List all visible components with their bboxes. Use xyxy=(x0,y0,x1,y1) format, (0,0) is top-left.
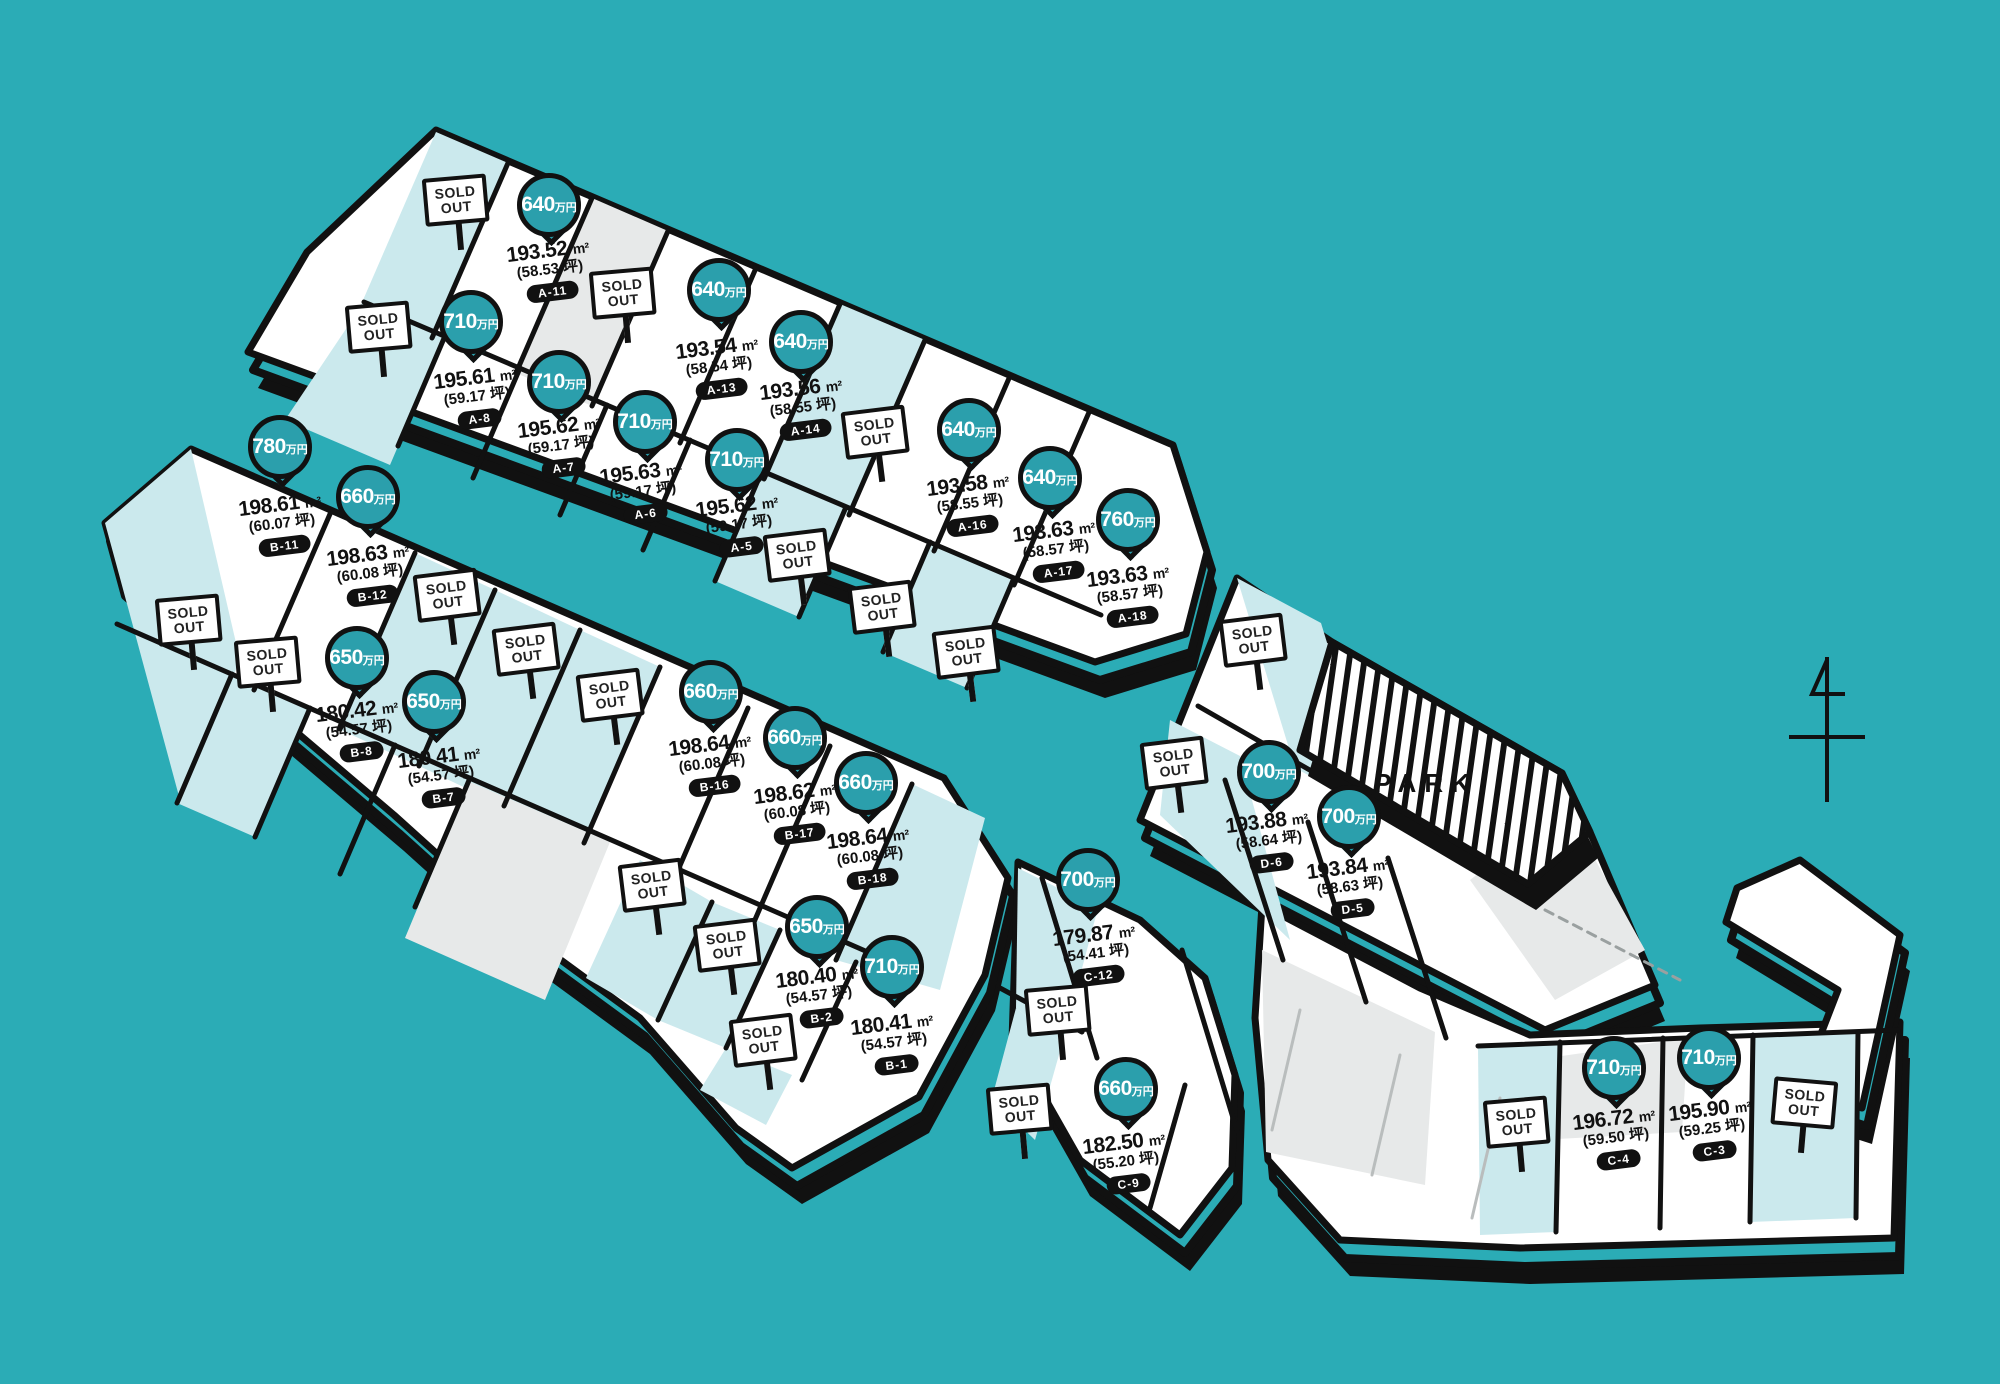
pin-price-unit: 万円 xyxy=(1275,766,1297,782)
sign-board: SOLDOUT xyxy=(491,622,560,677)
price-pin-B-1[interactable]: 710万円 xyxy=(860,935,924,999)
sold-out-sign: SOLDOUT xyxy=(491,621,566,706)
sold-out-text-line2: OUT xyxy=(1496,1120,1538,1139)
sold-out-sign: SOLDOUT xyxy=(1024,983,1097,1066)
lot-area-unit: m² xyxy=(1152,564,1170,582)
pin-price-value: 640 xyxy=(773,330,807,354)
price-pin-head: 640万円 xyxy=(517,173,581,237)
sold-out-text-line2: OUT xyxy=(777,553,819,573)
lot-area-unit: m² xyxy=(572,239,590,257)
sold-out-text-line2: OUT xyxy=(862,605,904,625)
price-pin-head: 700万円 xyxy=(1237,740,1301,804)
price-pin-A-17[interactable]: 640万円 xyxy=(1018,446,1082,510)
sold-out-text-line2: OUT xyxy=(855,430,897,450)
sign-board: SOLDOUT xyxy=(422,173,490,226)
lot-divider xyxy=(1856,1032,1858,1218)
pin-price-unit: 万円 xyxy=(555,199,577,215)
sold-out-text-line2: OUT xyxy=(168,618,210,637)
lot-area-unit: m² xyxy=(892,826,910,844)
price-pin-B-8[interactable]: 650万円 xyxy=(325,626,389,690)
price-pin-C-9[interactable]: 660万円 xyxy=(1094,1057,1158,1121)
sold-out-text: SOLDOUT xyxy=(1036,993,1079,1027)
pin-price-unit: 万円 xyxy=(1715,1052,1737,1068)
pin-price-unit: 万円 xyxy=(651,416,673,432)
pin-price-unit: 万円 xyxy=(1355,811,1377,827)
price-pin-head: 710万円 xyxy=(439,290,503,354)
price-pin-head: 660万円 xyxy=(763,706,827,770)
pin-price-unit: 万円 xyxy=(823,921,845,937)
sold-out-text-line2: OUT xyxy=(602,291,644,310)
pin-price-value: 780 xyxy=(252,435,286,459)
lot-area-unit: m² xyxy=(761,494,779,512)
lot-area-unit: m² xyxy=(1291,810,1309,828)
pin-price-unit: 万円 xyxy=(743,454,765,470)
sign-board: SOLDOUT xyxy=(986,1082,1054,1135)
pin-price-unit: 万円 xyxy=(363,652,385,668)
pin-price-unit: 万円 xyxy=(801,732,823,748)
sold-out-text: SOLDOUT xyxy=(1495,1105,1538,1139)
price-pin-head: 760万円 xyxy=(1096,488,1160,552)
sold-out-text-line2: OUT xyxy=(358,325,400,344)
price-pin-C-4[interactable]: 710万円 xyxy=(1582,1036,1646,1100)
site-map-stage: PARK SOLDOUTSOLDOUTSOLDOUTSOLDOUTSOLDOUT… xyxy=(0,0,2000,1384)
pin-price-value: 640 xyxy=(1022,466,1056,490)
price-pin-head: 640万円 xyxy=(687,258,751,322)
price-pin-head: 710万円 xyxy=(1582,1036,1646,1100)
pin-price-unit: 万円 xyxy=(1056,472,1078,488)
sold-out-sign: SOLDOUT xyxy=(575,667,650,752)
pin-price-unit: 万円 xyxy=(725,284,747,300)
pin-price-unit: 万円 xyxy=(1620,1062,1642,1078)
pin-price-unit: 万円 xyxy=(717,686,739,702)
pin-price-value: 710 xyxy=(1681,1046,1715,1070)
lot-area-unit: m² xyxy=(499,366,517,384)
pin-price-value: 710 xyxy=(864,955,898,979)
sold-out-text-line2: OUT xyxy=(1037,1008,1079,1027)
lot-area-unit: m² xyxy=(304,493,322,511)
pin-price-unit: 万円 xyxy=(286,441,308,457)
pin-price-value: 710 xyxy=(617,410,651,434)
lot-area-unit: m² xyxy=(825,377,843,395)
pin-price-unit: 万円 xyxy=(975,424,997,440)
price-pin-B-7[interactable]: 650万円 xyxy=(402,670,466,734)
sign-board: SOLDOUT xyxy=(155,593,223,646)
pin-price-value: 710 xyxy=(709,448,743,472)
price-pin-A-7[interactable]: 710万円 xyxy=(527,350,591,414)
lot-area-unit: m² xyxy=(463,745,481,763)
price-pin-B-16[interactable]: 660万円 xyxy=(679,660,743,724)
sold-out-sign: SOLDOUT xyxy=(1218,612,1293,697)
price-pin-A-6[interactable]: 710万円 xyxy=(613,390,677,454)
price-pin-head: 640万円 xyxy=(1018,446,1082,510)
sign-board: SOLDOUT xyxy=(847,580,916,635)
sold-out-sign: SOLDOUT xyxy=(1139,735,1214,820)
sold-out-text: SOLDOUT xyxy=(434,183,477,217)
sold-out-sign: SOLDOUT xyxy=(234,635,307,718)
price-pin-head: 660万円 xyxy=(336,465,400,529)
pin-price-unit: 万円 xyxy=(477,316,499,332)
pin-price-value: 710 xyxy=(443,310,477,334)
sold-out-sign: SOLDOUT xyxy=(155,593,228,676)
sold-out-sign: SOLDOUT xyxy=(617,857,692,942)
price-pin-head: 660万円 xyxy=(679,660,743,724)
pin-price-unit: 万円 xyxy=(1094,874,1116,890)
lot-area-unit: m² xyxy=(1148,1131,1166,1149)
price-pin-A-16[interactable]: 640万円 xyxy=(937,398,1001,462)
pin-price-unit: 万円 xyxy=(1132,1083,1154,1099)
sold-out-text-line2: OUT xyxy=(1154,761,1196,781)
lot-area-unit: m² xyxy=(1372,856,1390,874)
sign-board: SOLDOUT xyxy=(1218,613,1287,668)
sold-out-text: SOLDOUT xyxy=(630,867,674,903)
lot-area-unit: m² xyxy=(741,336,759,354)
sold-out-text-line2: OUT xyxy=(632,883,674,903)
price-pin-head: 650万円 xyxy=(325,626,389,690)
price-pin-B-11[interactable]: 780万円 xyxy=(248,415,312,479)
sign-board: SOLDOUT xyxy=(1139,736,1208,791)
sold-out-sign: SOLDOUT xyxy=(847,579,922,664)
pin-price-unit: 万円 xyxy=(440,696,462,712)
price-pin-C-12[interactable]: 700万円 xyxy=(1056,848,1120,912)
pin-price-unit: 万円 xyxy=(565,376,587,392)
pin-price-value: 700 xyxy=(1060,868,1094,892)
sold-out-text: SOLDOUT xyxy=(944,634,988,670)
pin-price-value: 660 xyxy=(683,680,717,704)
sold-out-text: SOLDOUT xyxy=(167,603,210,637)
pin-price-value: 660 xyxy=(767,726,801,750)
lot-area-unit: m² xyxy=(1078,519,1096,537)
pin-price-value: 650 xyxy=(789,915,823,939)
price-pin-B-12[interactable]: 660万円 xyxy=(336,465,400,529)
sold-out-text: SOLDOUT xyxy=(357,310,400,344)
sold-out-text: SOLDOUT xyxy=(860,589,904,625)
price-pin-head: 640万円 xyxy=(937,398,1001,462)
sold-out-sign: SOLDOUT xyxy=(422,173,495,256)
lot-area-unit: m² xyxy=(392,543,410,561)
price-pin-head: 780万円 xyxy=(248,415,312,479)
sold-out-text: SOLDOUT xyxy=(1231,622,1275,658)
pin-price-value: 650 xyxy=(406,690,440,714)
sold-out-sign: SOLDOUT xyxy=(345,300,418,383)
price-pin-A-14[interactable]: 640万円 xyxy=(769,310,833,374)
pin-price-value: 660 xyxy=(1098,1077,1132,1101)
sold-out-text-line2: OUT xyxy=(707,943,749,963)
pin-price-value: 700 xyxy=(1321,805,1355,829)
sold-out-text: SOLDOUT xyxy=(1152,745,1196,781)
pin-price-unit: 万円 xyxy=(1134,514,1156,530)
sold-out-text-line2: OUT xyxy=(590,693,632,713)
price-pin-head: 710万円 xyxy=(527,350,591,414)
lot-area-unit: m² xyxy=(734,733,752,751)
pin-price-value: 700 xyxy=(1241,760,1275,784)
lot-area-unit: m² xyxy=(381,699,399,717)
price-pin-head: 710万円 xyxy=(613,390,677,454)
pin-price-unit: 万円 xyxy=(807,336,829,352)
sold-out-text-line2: OUT xyxy=(743,1038,785,1058)
sold-out-text: SOLDOUT xyxy=(504,631,548,667)
price-pin-B-2[interactable]: 650万円 xyxy=(785,895,849,959)
price-pin-C-3[interactable]: 710万円 xyxy=(1677,1026,1741,1090)
lot-area-unit: m² xyxy=(1734,1098,1752,1116)
sold-out-text-line2: OUT xyxy=(506,647,548,667)
sold-out-text: SOLDOUT xyxy=(705,927,749,963)
sign-board: SOLDOUT xyxy=(234,635,302,688)
sold-out-text-line2: OUT xyxy=(946,650,988,670)
sign-board: SOLDOUT xyxy=(931,625,1000,680)
price-pin-B-18[interactable]: 660万円 xyxy=(834,751,898,815)
price-pin-A-13[interactable]: 640万円 xyxy=(687,258,751,322)
pin-price-value: 710 xyxy=(1586,1056,1620,1080)
price-pin-head: 640万円 xyxy=(769,310,833,374)
sign-board: SOLDOUT xyxy=(345,300,413,353)
pin-price-value: 760 xyxy=(1100,508,1134,532)
price-pin-head: 660万円 xyxy=(834,751,898,815)
pin-price-value: 640 xyxy=(521,193,555,217)
price-pin-A-5[interactable]: 710万円 xyxy=(705,428,769,492)
pin-price-unit: 万円 xyxy=(872,777,894,793)
pin-price-value: 660 xyxy=(340,485,374,509)
price-pin-A-11[interactable]: 640万円 xyxy=(517,173,581,237)
sold-out-text: SOLDOUT xyxy=(998,1092,1041,1126)
sold-out-text-line2: OUT xyxy=(999,1107,1041,1126)
sold-out-sign: SOLDOUT xyxy=(931,624,1006,709)
price-pin-B-17[interactable]: 660万円 xyxy=(763,706,827,770)
sign-board: SOLDOUT xyxy=(617,858,686,913)
price-pin-head: 660万円 xyxy=(1094,1057,1158,1121)
price-pin-head: 650万円 xyxy=(402,670,466,734)
sign-board: SOLDOUT xyxy=(692,918,761,973)
price-pin-A-18[interactable]: 760万円 xyxy=(1096,488,1160,552)
lot-area-unit: m² xyxy=(916,1012,934,1030)
price-pin-head: 700万円 xyxy=(1317,785,1381,849)
sold-out-text: SOLDOUT xyxy=(246,645,289,679)
pin-price-unit: 万円 xyxy=(374,491,396,507)
price-pin-head: 710万円 xyxy=(860,935,924,999)
lot-area-unit: m² xyxy=(1118,923,1136,941)
pin-price-value: 660 xyxy=(838,771,872,795)
sold-out-text-line2: OUT xyxy=(247,660,289,679)
price-pin-head: 700万円 xyxy=(1056,848,1120,912)
pin-price-value: 710 xyxy=(531,370,565,394)
sign-board: SOLDOUT xyxy=(575,668,644,723)
sold-out-text-line2: OUT xyxy=(1233,638,1275,658)
lot-area-unit: m² xyxy=(992,473,1010,491)
price-pin-D-5[interactable]: 700万円 xyxy=(1317,785,1381,849)
sold-out-text: SOLDOUT xyxy=(588,677,632,713)
lot-area-unit: m² xyxy=(583,415,601,433)
lot-area-unit: m² xyxy=(841,965,859,983)
sold-out-text-line2: OUT xyxy=(435,198,477,217)
price-pin-head: 710万円 xyxy=(1677,1026,1741,1090)
pin-price-value: 650 xyxy=(329,646,363,670)
price-pin-A-8[interactable]: 710万円 xyxy=(439,290,503,354)
price-pin-D-6[interactable]: 700万円 xyxy=(1237,740,1301,804)
pin-price-unit: 万円 xyxy=(898,961,920,977)
price-pin-head: 710万円 xyxy=(705,428,769,492)
pin-price-value: 640 xyxy=(691,278,725,302)
lot-area-unit: m² xyxy=(665,461,683,479)
pin-price-value: 640 xyxy=(941,418,975,442)
price-pin-head: 650万円 xyxy=(785,895,849,959)
